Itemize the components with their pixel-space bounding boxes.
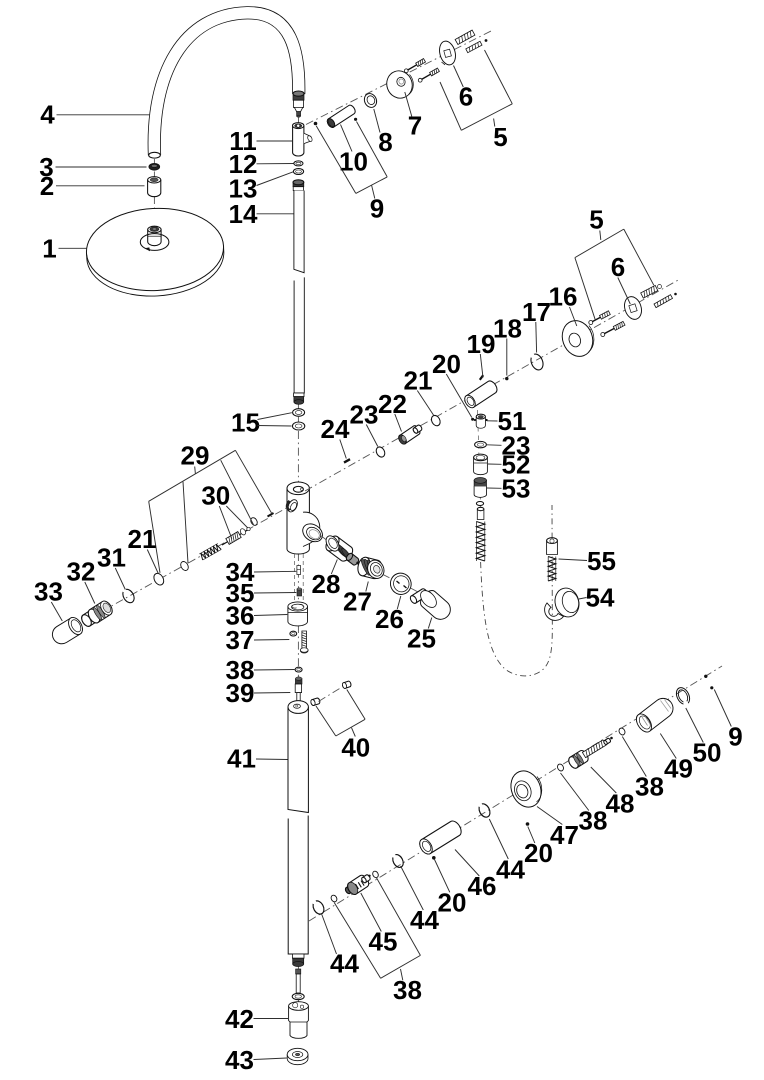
svg-text:2: 2 [40,171,54,201]
svg-text:39: 39 [226,678,255,708]
svg-text:38: 38 [579,806,608,836]
svg-text:21: 21 [128,524,157,554]
svg-text:40: 40 [341,733,370,763]
svg-text:33: 33 [34,577,63,607]
svg-text:9: 9 [370,194,384,224]
svg-text:26: 26 [375,604,404,634]
svg-text:9: 9 [728,722,742,752]
svg-text:4: 4 [40,100,55,130]
svg-text:23: 23 [350,400,379,430]
svg-text:55: 55 [587,546,616,576]
svg-text:54: 54 [586,583,615,613]
svg-text:53: 53 [502,474,531,504]
svg-text:5: 5 [589,205,603,235]
svg-text:24: 24 [321,414,350,444]
svg-text:50: 50 [693,738,722,768]
svg-text:44: 44 [410,905,439,935]
svg-text:17: 17 [522,297,551,327]
svg-text:32: 32 [67,557,96,587]
svg-text:49: 49 [664,754,693,784]
svg-text:19: 19 [467,329,496,359]
svg-text:28: 28 [312,569,341,599]
svg-text:27: 27 [343,587,372,617]
svg-text:37: 37 [226,625,255,655]
svg-text:7: 7 [408,111,422,141]
svg-text:20: 20 [524,838,553,868]
svg-text:44: 44 [496,855,525,885]
svg-text:44: 44 [330,949,359,979]
svg-text:8: 8 [378,127,392,157]
svg-text:30: 30 [201,481,230,511]
svg-text:41: 41 [227,744,256,774]
svg-text:1: 1 [42,234,56,264]
svg-text:5: 5 [493,122,507,152]
svg-text:38: 38 [635,772,664,802]
svg-text:18: 18 [493,314,522,344]
svg-text:15: 15 [231,408,260,438]
svg-text:22: 22 [378,389,407,419]
svg-text:6: 6 [459,82,473,112]
svg-text:16: 16 [549,282,578,312]
svg-text:42: 42 [225,1004,254,1034]
svg-text:46: 46 [468,871,497,901]
svg-text:20: 20 [438,888,467,918]
svg-text:38: 38 [393,975,422,1005]
svg-text:14: 14 [229,199,258,229]
svg-text:48: 48 [606,789,635,819]
svg-text:25: 25 [407,624,436,654]
svg-text:47: 47 [550,820,579,850]
svg-text:31: 31 [97,543,126,573]
svg-text:43: 43 [225,1045,254,1075]
svg-text:45: 45 [369,927,398,957]
svg-text:29: 29 [181,441,210,471]
